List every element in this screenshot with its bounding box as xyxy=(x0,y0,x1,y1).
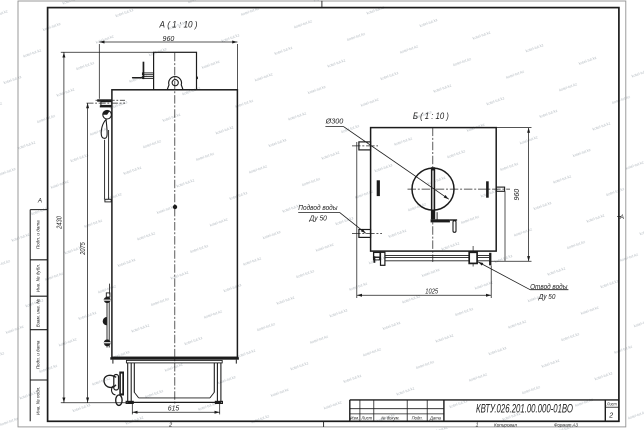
svg-text:А ( 1 : 10 ): А ( 1 : 10 ) xyxy=(159,19,198,29)
svg-text:Инв. № дубл.: Инв. № дубл. xyxy=(36,264,41,292)
svg-text:960: 960 xyxy=(512,189,521,201)
svg-text:Формат А3: Формат А3 xyxy=(554,422,579,427)
svg-text:960: 960 xyxy=(163,34,175,43)
svg-text:А: А xyxy=(37,197,42,204)
svg-text:Ø300: Ø300 xyxy=(325,119,344,126)
svg-text:КВТУ.026.201.00.000-01ВО: КВТУ.026.201.00.000-01ВО xyxy=(476,402,573,416)
svg-text:Подп.: Подп. xyxy=(412,415,423,420)
svg-text:2075: 2075 xyxy=(78,242,87,256)
svg-text:Дата: Дата xyxy=(429,415,442,420)
svg-text:№ докум.: № докум. xyxy=(381,415,399,420)
svg-text:Копировал: Копировал xyxy=(494,422,518,427)
svg-text:Подп. и дата: Подп. и дата xyxy=(36,340,41,369)
svg-text:615: 615 xyxy=(168,404,180,413)
svg-text:2430: 2430 xyxy=(55,216,64,230)
svg-text:Ду 50: Ду 50 xyxy=(309,215,327,222)
svg-text:1025: 1025 xyxy=(425,287,439,296)
svg-text:А: А xyxy=(619,214,624,221)
svg-text:Лист: Лист xyxy=(360,415,372,420)
svg-text:Подп. и дата: Подп. и дата xyxy=(36,220,41,249)
svg-text:Ду 50: Ду 50 xyxy=(538,294,556,301)
svg-text:Лист: Лист xyxy=(606,402,617,407)
svg-text:Б ( 1 : 10 ): Б ( 1 : 10 ) xyxy=(413,111,449,121)
svg-text:2: 2 xyxy=(168,423,172,429)
svg-text:Изм.: Изм. xyxy=(350,415,359,420)
svg-text:2: 2 xyxy=(608,412,613,419)
svg-text:1: 1 xyxy=(476,422,479,428)
svg-text:Подвод воды: Подвод воды xyxy=(298,204,338,212)
svg-text:Взам. инв. №: Взам. инв. № xyxy=(36,299,41,327)
svg-text:Инв. № подл.: Инв. № подл. xyxy=(36,386,41,415)
